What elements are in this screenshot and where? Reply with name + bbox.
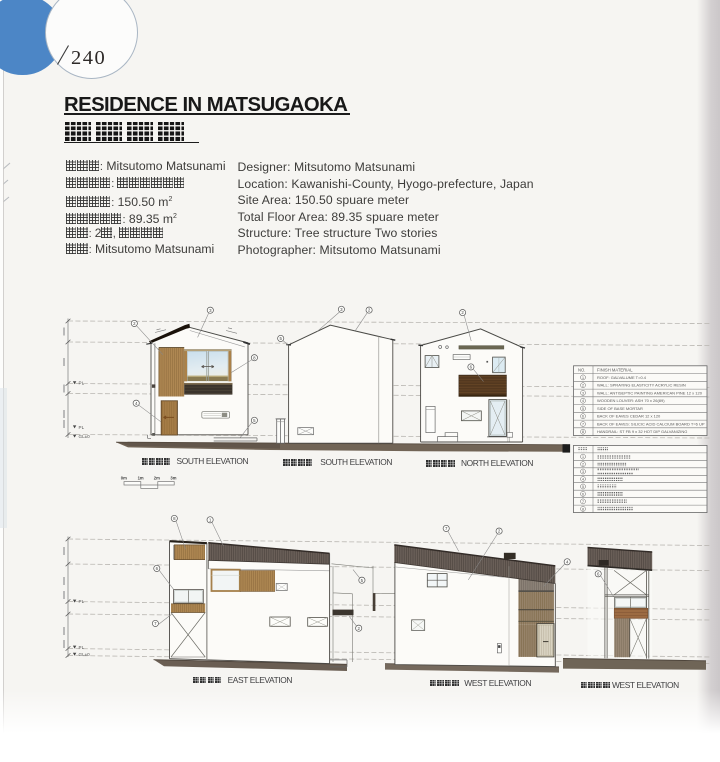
svg-text:3: 3 [582,470,584,474]
svg-text:1: 1 [582,455,584,459]
svg-text:BACK OF EAVES: SILICIC ACID CA: BACK OF EAVES: SILICIC ACID CALCIUM BOAR… [597,422,705,427]
svg-text:PL: PL [79,381,85,386]
svg-text:8: 8 [582,430,584,434]
svg-text:ROOF: GALVALUME T=0.4: ROOF: GALVALUME T=0.4 [597,375,647,380]
svg-text:4: 4 [582,477,584,481]
svg-text:PL: PL [79,425,85,430]
svg-text:PL: PL [79,599,85,604]
svg-text:BACK OF EAVES CEDAR 12 x 120: BACK OF EAVES CEDAR 12 x 120 [597,414,661,419]
svg-text:2: 2 [582,463,584,467]
svg-text:WOODEN LOUVER: ASH 70 x 26(89: WOODEN LOUVER: ASH 70 x 26(89) [597,398,665,403]
svg-text:5: 5 [582,485,584,489]
svg-text:1m: 1m [138,476,144,481]
svg-text:NO.: NO. [578,367,585,372]
svg-text:3m: 3m [170,476,176,481]
svg-text:PL: PL [79,645,85,650]
svg-text:FINISH MATERIAL: FINISH MATERIAL [597,367,633,372]
svg-text:WALL: ANTISEPTIC PAINTING AMER: WALL: ANTISEPTIC PAINTING AMERICAN PINE … [597,390,703,395]
svg-text:6: 6 [582,415,584,419]
svg-text:GL±0: GL±0 [79,652,91,657]
svg-text:2: 2 [582,384,584,388]
svg-text:7: 7 [582,422,584,426]
svg-text:WALL: SPRAYING ELASTICITY ACRY: WALL: SPRAYING ELASTICITY ACRYLIC RESIN [597,383,686,388]
svg-text:0m: 0m [121,476,127,481]
svg-text:8: 8 [582,507,584,511]
svg-text:HANDRAIL: ST FB 9 x 32 HOT DI: HANDRAIL: ST FB 9 x 32 HOT DIP GALVANIZI… [597,429,687,434]
svg-text:4: 4 [582,399,584,403]
svg-text:6: 6 [582,492,584,496]
svg-text:2m: 2m [154,476,160,481]
svg-text:3: 3 [582,391,584,395]
svg-text:SIDE OF BASE MORTAR: SIDE OF BASE MORTAR [597,406,643,411]
svg-text:5: 5 [582,407,584,411]
svg-text:GL±0: GL±0 [79,434,91,439]
svg-text:1: 1 [582,376,584,380]
svg-text:7: 7 [582,500,584,504]
